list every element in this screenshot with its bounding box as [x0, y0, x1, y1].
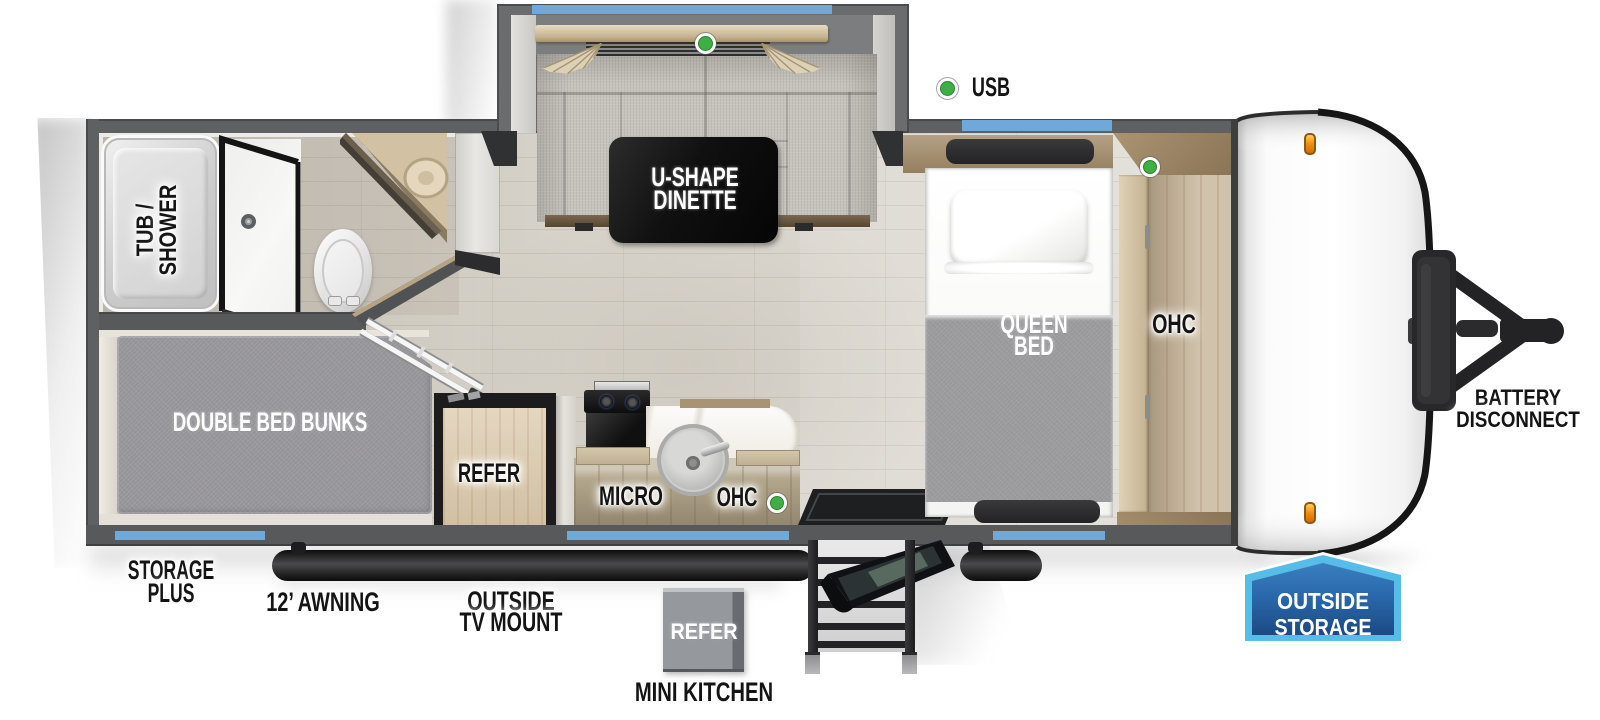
- svg-text:OUTSIDE: OUTSIDE: [1277, 588, 1369, 614]
- svg-text:STORAGE: STORAGE: [1275, 614, 1372, 640]
